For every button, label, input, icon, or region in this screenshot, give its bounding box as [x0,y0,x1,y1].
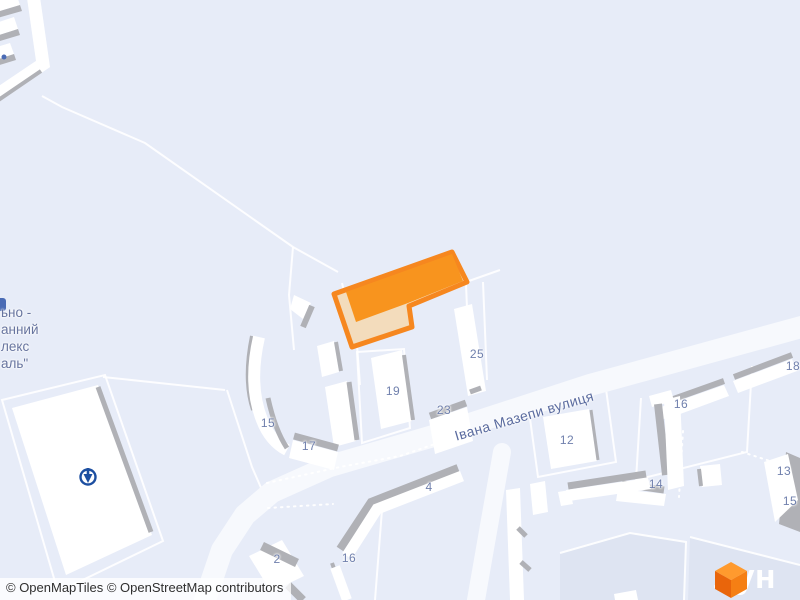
attribution-text[interactable]: © OpenMapTiles © OpenStreetMap contribut… [6,580,283,595]
building-number-label: 12 [560,433,574,447]
poi-label-line: лекс [1,338,39,355]
building-number-label: 16 [342,551,356,565]
building-number-label: 15 [261,416,275,430]
building-complex-topleft [0,0,43,101]
poi-label-line: аль" [1,355,39,372]
building-number-label: 23 [437,403,451,417]
poi-label-line: ьно - [1,304,39,321]
map-tiles [0,0,800,600]
map-canvas[interactable]: ьно -аннийлексаль" 151719232512421616141… [0,0,800,600]
poi-label-text: ьно -аннийлексаль" [1,304,39,372]
selected-building-marker[interactable] [334,252,467,347]
brand-logo[interactable]: лун [714,560,776,594]
building-number-label: 25 [470,347,484,361]
map-attribution[interactable]: © OpenMapTiles © OpenStreetMap contribut… [0,578,291,600]
building-number-label: 18 [786,359,800,373]
building-number-label: 14 [649,477,663,491]
building-number-label: 4 [425,480,432,494]
building-number-label: 19 [386,384,400,398]
building-number-label: 13 [777,464,791,478]
building-number-label: 15 [783,494,797,508]
logo-cube-icon [714,560,748,598]
building-number-label: 16 [674,397,688,411]
building-number-label: 17 [302,439,316,453]
poi-label-line: анний [1,321,39,338]
building-number-label: 2 [273,552,280,566]
